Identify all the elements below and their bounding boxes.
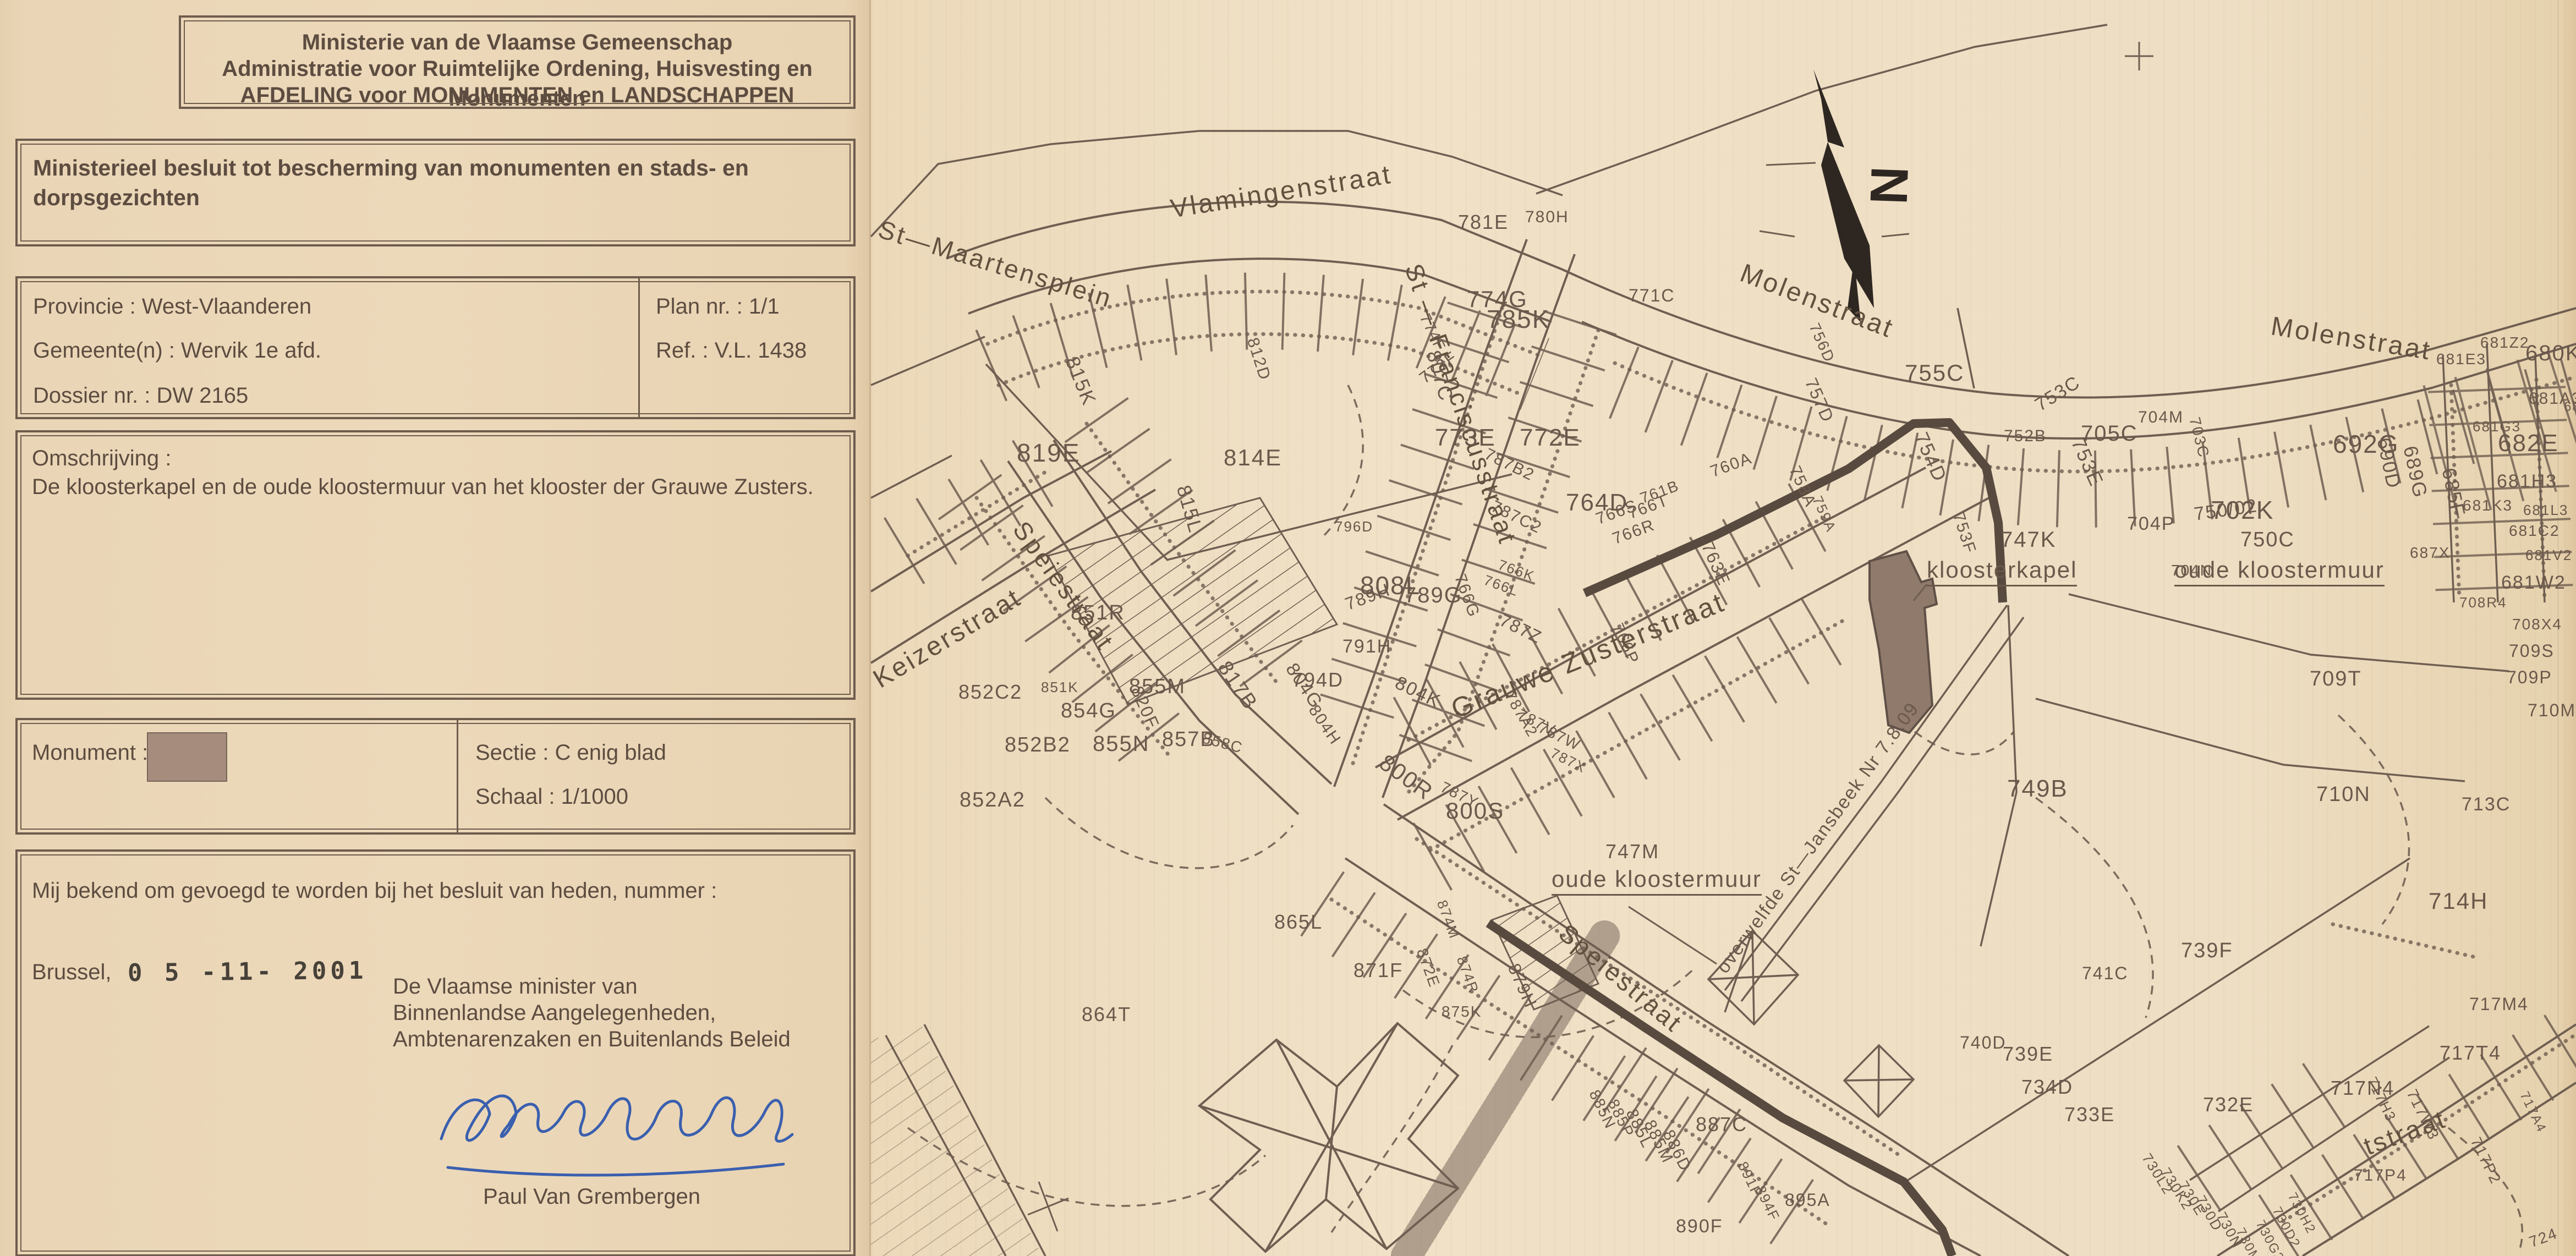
parcel-label: 681C2 (2509, 523, 2560, 539)
parcel-label: 717P4 (2354, 1167, 2407, 1184)
parcel-label: 739F (2181, 940, 2233, 961)
parcel-label: 771C (1629, 287, 1675, 304)
parcel-label: 855M (1129, 676, 1186, 697)
parcel-label: 852C2 (958, 682, 1022, 702)
column-divider (638, 278, 640, 417)
parcel-label: 780H (1525, 209, 1569, 226)
dossier-field: Dossier nr. : DW 2165 (33, 381, 248, 410)
minister-line3: Ambtenarenzaken en Buitenlands Beleid (393, 1024, 791, 1054)
monument-box: Monument : Sectie : C enig blad Schaal :… (15, 718, 856, 835)
municipality-field: Gemeente(n) : Wervik 1e afd. (33, 336, 321, 365)
ministry-line3: AFDELING voor MONUMENTEN en LANDSCHAPPEN (181, 80, 853, 110)
parcel-label: 747K (2000, 529, 2056, 551)
parcel-label: 814E (1224, 446, 1282, 469)
parcel-label: 708R4 (2459, 595, 2507, 610)
parcel-label: 705C (2081, 423, 2138, 445)
province-field: Provincie : West-Vlaanderen (33, 292, 311, 321)
parcel-label: 681Z2 (2480, 335, 2529, 350)
parcel-label: 752B (2004, 428, 2047, 445)
parcel-label: 864T (1082, 1005, 1131, 1024)
parcel-label: 734D (2021, 1077, 2073, 1097)
monument-color-swatch (147, 732, 227, 782)
decree-title-box: Ministerieel besluit tot bescherming van… (15, 139, 856, 246)
closing-line: Mij bekend om gevoegd te worden bij het … (32, 876, 813, 906)
description-box: Omschrijving : De kloosterkapel en de ou… (15, 430, 856, 700)
parcel-label: 733E (2064, 1105, 2115, 1125)
parcel-label: 794D (1292, 670, 1344, 690)
description-text: De kloosterkapel en de oude kloostermuur… (32, 472, 824, 502)
parcel-label: 708X4 (2512, 617, 2562, 632)
monument-label: Monument : (32, 738, 148, 767)
parcel-label: 702K (2211, 497, 2274, 523)
feature-label: kloosterkapel (1927, 558, 2077, 586)
parcel-label: 865L (1274, 912, 1323, 932)
parcel-label: 890F (1676, 1217, 1723, 1236)
minister-line2: Binnenlandse Aangelegenheden, (393, 998, 716, 1028)
schaal-field: Schaal : 1/1000 (475, 782, 628, 811)
parcel-label: 717T4 (2440, 1043, 2501, 1063)
parcel-label: 887C (1696, 1115, 1747, 1134)
parcel-label: 796D (1335, 519, 1373, 534)
parcel-label: 819E (1017, 440, 1080, 465)
parcel-label: 895A (1785, 1191, 1830, 1209)
parcel-label: 710N (2316, 784, 2371, 805)
parcel-label: 704P (2127, 514, 2175, 533)
parcel-label: 681V2 (2525, 548, 2572, 562)
parcel-label: 852A2 (960, 789, 1026, 810)
plan-field: Plan nr. : 1/1 (656, 292, 780, 321)
parcel-label: 681G3 (2473, 419, 2521, 434)
place-label: Brussel, (32, 957, 112, 987)
parcel-label: 749B (2007, 777, 2068, 801)
ref-field: Ref. : V.L. 1438 (656, 336, 807, 365)
stipple-rows (908, 292, 2576, 1224)
parcel-label: 704M (2138, 409, 2184, 426)
decree-title: Ministerieel besluit tot bescherming van… (33, 153, 792, 212)
column-divider (457, 720, 458, 832)
parcel-label: 740D (1960, 1034, 2007, 1051)
parcel-label: 773E (1435, 426, 1496, 450)
feature-label: oude kloostermuur (1552, 868, 1762, 896)
parcel-label: 681W2 (2501, 573, 2566, 592)
parcel-label: 750C (2240, 529, 2295, 550)
parcel-label: 709S (2509, 642, 2555, 660)
parcel-label: 755C (1905, 361, 1964, 385)
parcel-label: 713C (2462, 795, 2511, 814)
parcel-label: 875K (1442, 1004, 1482, 1019)
parcel-label: 682E (2498, 431, 2559, 456)
scanned-protection-decree-with-cadastral-map: N Ministerie van de Vlaamse Gemeenschap … (0, 0, 2576, 1256)
parcel-label: 781E (1458, 212, 1509, 232)
identification-box: Provincie : West-Vlaanderen Gemeente(n) … (15, 276, 856, 419)
parcel-label: 681E3 (2436, 352, 2486, 367)
parcel-label: 710M (2528, 701, 2576, 719)
parcel-label: 681H3 (2497, 472, 2557, 491)
parcel-label: 681 (2564, 401, 2576, 414)
description-label: Omschrijving : (32, 443, 171, 473)
parcel-label: 739E (2003, 1044, 2053, 1064)
parcel-label: 851K (1041, 680, 1079, 694)
parcel-label: 709P (2507, 668, 2552, 686)
parcel-label: 871F (1353, 961, 1403, 980)
ministry-line1: Ministerie van de Vlaamse Gemeenschap (181, 28, 853, 57)
sectie-field: Sectie : C enig blad (475, 738, 666, 767)
parcel-label: 855N (1093, 733, 1150, 755)
parcel-label: 714H (2429, 890, 2488, 913)
parcel-label: 747M (1605, 842, 1659, 862)
parcel-label: 680K (2525, 342, 2576, 364)
parcel-label: 791H (1342, 637, 1391, 656)
north-letter: N (1857, 165, 1919, 205)
header-box: Ministerie van de Vlaamse Gemeenschap Ad… (179, 15, 856, 109)
parcel-label: 709T (2310, 668, 2362, 689)
signatory-name: Paul Van Grembergen (483, 1182, 700, 1211)
parcel-label: 789G (1404, 584, 1462, 606)
parcel-label: 687X (2410, 545, 2450, 561)
parcel-label: 854G (1061, 700, 1116, 721)
signature-box: Mij bekend om gevoegd te worden bij het … (15, 849, 856, 1256)
parcel-label: 704N (2171, 563, 2212, 578)
parcel-label: 717M4 (2469, 995, 2529, 1013)
parcel-label: 852B2 (1005, 734, 1071, 755)
street-edges (871, 202, 2576, 1256)
date-stamp: 0 5 -11- 2001 (128, 956, 368, 989)
parcel-label: 732E (2203, 1095, 2254, 1115)
parcel-label: 741C (2082, 964, 2129, 982)
parcel-label: 681L3 (2523, 503, 2568, 517)
signature (425, 1062, 821, 1188)
parcel-label: 681K3 (2463, 498, 2513, 513)
parcel-label: 851R (1071, 602, 1125, 623)
parcel-label: 772E (1520, 426, 1581, 450)
parcel-label: 774G (1467, 288, 1528, 311)
minister-line1: De Vlaamse minister van (393, 972, 638, 1001)
